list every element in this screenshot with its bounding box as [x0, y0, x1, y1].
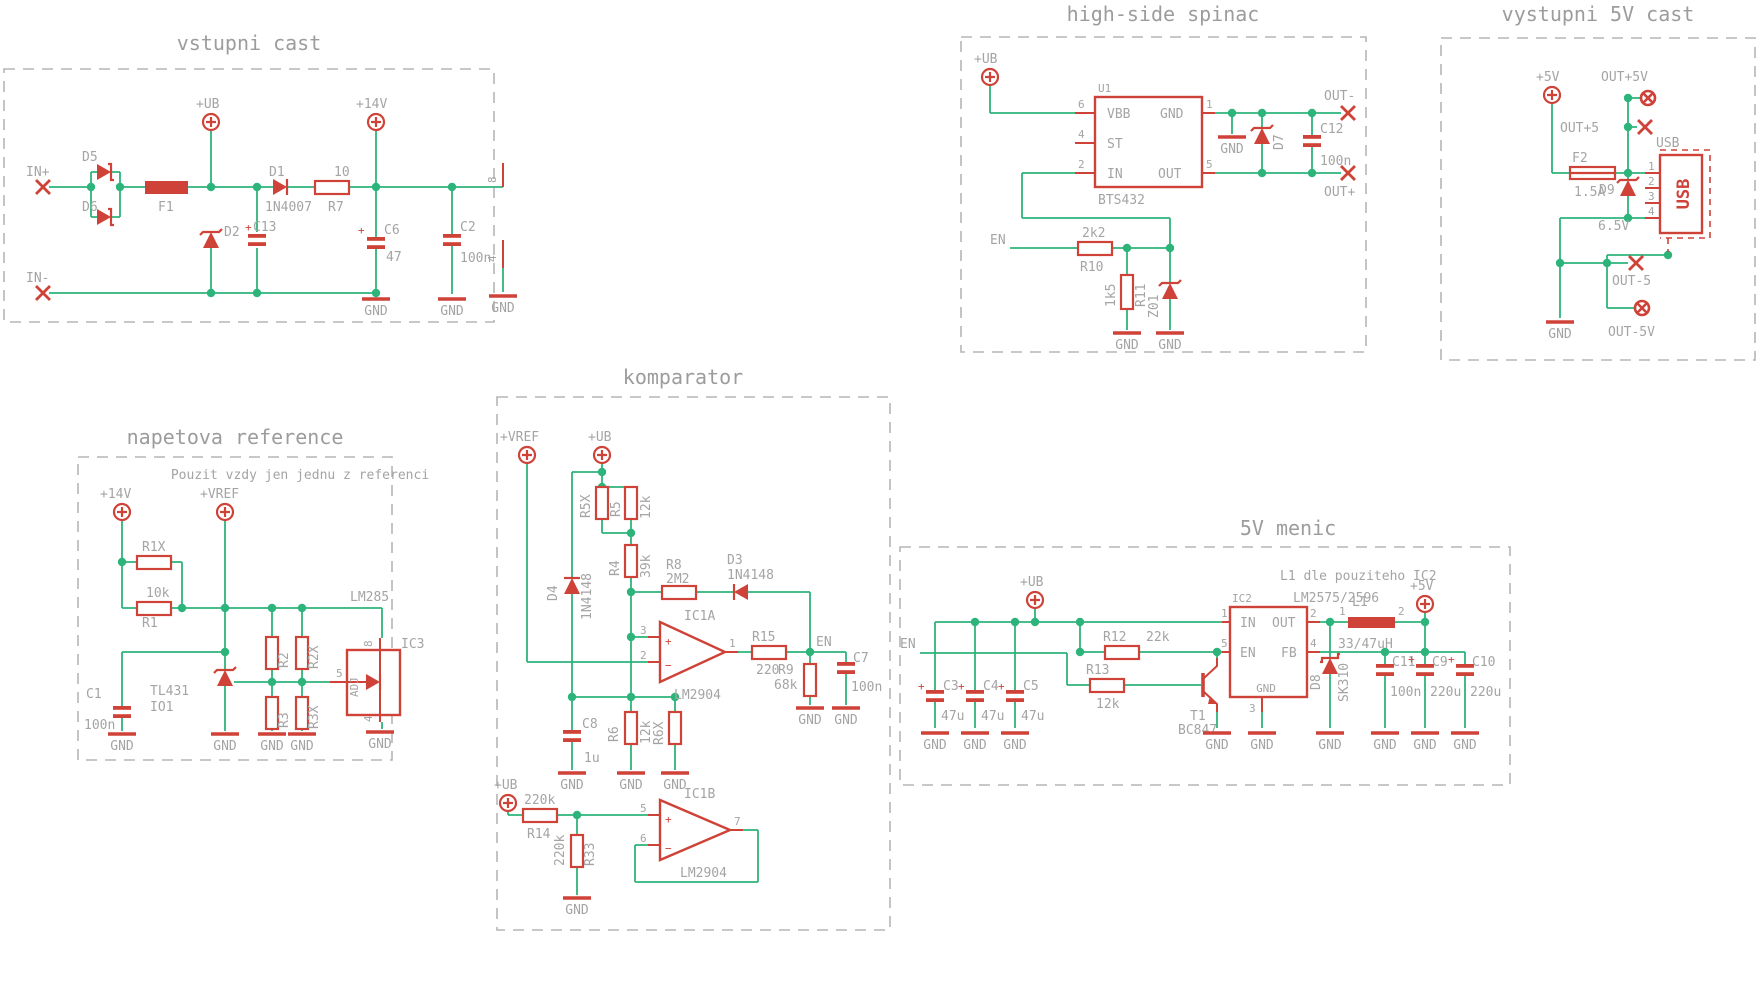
label-gnd: GND — [110, 739, 134, 754]
label-ic2-pin3: 3 — [1249, 702, 1256, 715]
label-r4-value: 39k — [639, 554, 654, 578]
label-tl431: TL431 — [150, 684, 189, 699]
junction — [207, 183, 215, 191]
junction — [116, 183, 124, 191]
label-ic3-pin8: 8 — [362, 640, 375, 647]
power-ub — [500, 795, 516, 811]
label-net-en: EN — [900, 637, 916, 652]
label-r1-value: 10k — [146, 586, 170, 601]
label-d9-value: 6.5V — [1598, 219, 1629, 234]
label-c5: C5 — [1023, 679, 1039, 694]
label-d3-value: 1N4148 — [727, 568, 774, 583]
ic2-pin-gnd: GND — [1256, 682, 1276, 695]
terminal-out-minus-5 — [1629, 256, 1643, 270]
schematic-canvas: vstupni cast IN+ IN- D5 D6 F1 +UB D2 + C… — [0, 0, 1758, 1000]
junction — [1228, 109, 1236, 117]
label-ic1a-pin3: 3 — [640, 624, 647, 637]
junction — [221, 604, 229, 612]
cap-c4 — [966, 690, 984, 702]
label-gnd: GND — [213, 739, 237, 754]
label-r12: R12 — [1103, 630, 1126, 645]
label-r9-value: 68k — [774, 678, 798, 693]
label-ic1a: IC1A — [684, 609, 715, 624]
label-r1: R1 — [142, 616, 158, 631]
junction — [1421, 618, 1429, 626]
terminal-in-minus — [36, 286, 50, 300]
label-gnd: GND — [963, 738, 987, 753]
junction — [268, 678, 276, 686]
label-in-minus: IN- — [26, 271, 49, 286]
junction — [627, 693, 635, 701]
resistor-r10 — [1078, 242, 1112, 255]
section-title: vstupni cast — [177, 31, 322, 55]
junction — [1421, 648, 1429, 656]
inductor-l1 — [1348, 617, 1395, 628]
label-ub: +UB — [1020, 575, 1044, 590]
junction — [372, 183, 380, 191]
power-ub — [982, 69, 998, 85]
diode-d6 — [97, 209, 114, 225]
junction — [627, 588, 635, 596]
label-c3: C3 — [943, 679, 959, 694]
label-gnd: GND — [560, 778, 584, 793]
label-14v: +14V — [356, 97, 387, 112]
label-d8-value: SK310 — [1337, 663, 1352, 702]
label-u1: U1 — [1098, 82, 1111, 95]
junction — [1213, 648, 1221, 656]
label-r15-value: 220 — [756, 663, 779, 678]
label-usb-pin2: 2 — [1648, 175, 1655, 188]
diode-d1 — [273, 179, 287, 195]
section-title: high-side spinac — [1067, 2, 1260, 26]
ic2-pin-out: OUT — [1272, 616, 1296, 631]
label-usb: USB — [1656, 136, 1680, 151]
label-c6: C6 — [384, 223, 400, 238]
junction — [178, 604, 186, 612]
label-r13-value: 12k — [1096, 697, 1120, 712]
pad-out-minus-5v — [1635, 301, 1649, 315]
junction — [118, 558, 126, 566]
resistor-r7 — [315, 181, 349, 194]
label-gnd: GND — [364, 304, 388, 319]
junction — [627, 529, 635, 537]
label-d1-value: 1N4007 — [265, 200, 312, 215]
label-gnd: GND — [1453, 738, 1477, 753]
junction — [253, 183, 261, 191]
junction — [1258, 109, 1266, 117]
label-pin8: 8 — [486, 176, 499, 183]
label-gnd: GND — [1158, 338, 1182, 353]
junction — [1076, 648, 1084, 656]
label-c11-value: 100n — [1390, 685, 1421, 700]
resistor-r6x — [669, 712, 681, 744]
section-title: vystupni 5V cast — [1502, 2, 1695, 26]
label-out-minus-5: OUT-5 — [1612, 274, 1651, 289]
label-d7: D7 — [1272, 134, 1287, 150]
cap-c6 — [367, 237, 385, 249]
label-ic3-pin5: 5 — [336, 667, 343, 680]
label-gnd: GND — [798, 713, 822, 728]
label-c13: C13 — [253, 220, 276, 235]
power-14v — [114, 504, 130, 520]
label-c1: C1 — [86, 687, 102, 702]
label-ic1b: IC1B — [684, 787, 715, 802]
resistor-r15 — [752, 646, 786, 659]
usb-rotated-text: USB — [1674, 179, 1694, 210]
label-c1-value: 100n — [84, 718, 115, 733]
power-vref — [217, 504, 233, 520]
resistor-r13 — [1090, 679, 1124, 692]
schematic-svg: vstupni cast IN+ IN- D5 D6 F1 +UB D2 + C… — [0, 0, 1758, 1000]
label-c7-value: 100n — [851, 680, 882, 695]
label-gnd: GND — [1548, 327, 1572, 342]
label-5v: +5V — [1410, 579, 1434, 594]
junction — [253, 289, 261, 297]
label-r13: R13 — [1086, 663, 1109, 678]
ic1a-minus: − — [665, 659, 672, 672]
label-z01: Z01 — [1147, 295, 1162, 318]
section-converter: 5V menic EN +UB R13 12k R12 22k T1 BC847… — [900, 516, 1510, 785]
label-r15: R15 — [752, 630, 775, 645]
power-ub — [594, 447, 610, 463]
label-ub: +UB — [494, 778, 518, 793]
junction — [573, 811, 581, 819]
resistor-r14 — [523, 809, 557, 822]
label-gnd: GND — [491, 301, 515, 316]
label-l1: L1 — [1352, 595, 1368, 610]
section-frame — [4, 69, 494, 322]
label-gnd: GND — [1318, 738, 1342, 753]
label-r8-value: 2M2 — [666, 572, 689, 587]
label-f1: F1 — [158, 200, 174, 215]
label-gnd: GND — [1250, 738, 1274, 753]
polarity-plus: + — [998, 680, 1005, 693]
label-ic2-pin5: 5 — [1221, 637, 1228, 650]
junction — [207, 289, 215, 297]
section-title: 5V menic — [1240, 516, 1336, 540]
u1-pin-out: OUT — [1158, 167, 1182, 182]
section-note: Pouzit vzdy jen jednu z referenci — [171, 468, 429, 483]
label-r33: R33 — [583, 843, 598, 866]
u1-pin-st: ST — [1107, 137, 1123, 152]
label-d2: D2 — [224, 225, 240, 240]
cap-c12 — [1303, 135, 1321, 147]
label-d3: D3 — [727, 553, 743, 568]
junction — [1603, 259, 1611, 267]
terminal-out-plus-5 — [1638, 120, 1652, 134]
section-title: napetova reference — [127, 425, 344, 449]
label-c8: C8 — [582, 717, 598, 732]
label-vref: +VREF — [500, 430, 539, 445]
diode-d4 — [564, 578, 580, 594]
ic2-pin-fb: FB — [1281, 646, 1297, 661]
cap-c13 — [248, 234, 266, 246]
label-ic1a-value: LM2904 — [674, 688, 721, 703]
label-gnd: GND — [440, 304, 464, 319]
section-comparator: komparator +VREF +UB R5X R5 12k R4 39k D… — [494, 365, 890, 930]
label-5v: +5V — [1536, 70, 1560, 85]
resistor-r5 — [625, 487, 637, 519]
label-out-plus: OUT+ — [1324, 185, 1355, 200]
u1-pin-in: IN — [1107, 167, 1123, 182]
ic1b-minus: − — [665, 842, 672, 855]
label-c6-value: 47 — [386, 250, 402, 265]
junction — [372, 289, 380, 297]
label-out-plus-5v: OUT+5V — [1601, 70, 1648, 85]
label-u1-value: BTS432 — [1098, 193, 1145, 208]
label-r5x: R5X — [579, 494, 594, 518]
label-d4-value: 1N4148 — [580, 573, 595, 620]
zener-tl431 — [214, 667, 236, 686]
label-l1-pin1: 1 — [1339, 605, 1346, 618]
label-gnd: GND — [1220, 142, 1244, 157]
label-ic1b-pin7: 7 — [734, 815, 741, 828]
ic1a-plus: + — [665, 635, 672, 648]
power-5v — [1417, 596, 1433, 612]
junction — [598, 468, 606, 476]
label-c5-value: 47u — [1021, 709, 1044, 724]
junction — [627, 633, 635, 641]
label-r14: R14 — [527, 827, 551, 842]
label-d6: D6 — [82, 200, 98, 215]
label-r2: R2 — [277, 652, 292, 668]
label-gnd: GND — [1003, 738, 1027, 753]
cap-c5 — [1006, 690, 1024, 702]
junction — [1556, 259, 1564, 267]
junction — [87, 183, 95, 191]
u1-pin-vbb: VBB — [1107, 107, 1131, 122]
polarity-plus: + — [245, 221, 252, 234]
ic2-pin-in: IN — [1240, 616, 1256, 631]
power-ub — [203, 114, 219, 130]
label-ub: +UB — [196, 97, 220, 112]
label-l1-pin2: 2 — [1398, 605, 1405, 618]
resistor-r11 — [1121, 275, 1133, 309]
label-r3x: R3X — [307, 705, 322, 729]
junction — [568, 693, 576, 701]
ic1b-plus: + — [665, 813, 672, 826]
zener-d9 — [1617, 177, 1639, 196]
junction — [298, 604, 306, 612]
resistor-r9 — [804, 664, 816, 696]
label-t1: T1 — [1190, 709, 1206, 724]
label-c3-value: 47u — [941, 709, 964, 724]
power-vref — [519, 447, 535, 463]
diode-d3 — [734, 584, 748, 600]
junction — [448, 183, 456, 191]
label-lm285: LM285 — [350, 590, 389, 605]
label-ic1b-pin5: 5 — [640, 802, 647, 815]
label-r2x: R2X — [307, 645, 322, 669]
label-14v: +14V — [100, 487, 131, 502]
label-ic3-pin4: 4 — [362, 715, 375, 722]
label-r5: R5 — [609, 501, 624, 517]
diode-d5 — [97, 164, 114, 180]
label-c12: C12 — [1320, 122, 1343, 137]
junction — [1308, 169, 1316, 177]
junction — [1011, 618, 1019, 626]
section-input: vstupni cast IN+ IN- D5 D6 F1 +UB D2 + C… — [4, 31, 517, 322]
label-c10-value: 220u — [1470, 685, 1501, 700]
label-r6x: R6X — [652, 721, 667, 745]
label-ic1b-value: LM2904 — [680, 866, 727, 881]
junction — [1624, 123, 1632, 131]
cap-c2 — [443, 234, 461, 246]
resistor-r4 — [625, 545, 637, 577]
section-title: komparator — [623, 365, 743, 389]
polarity-plus: + — [918, 680, 925, 693]
label-out-minus-5v: OUT-5V — [1608, 325, 1655, 340]
label-ic3: IC3 — [401, 637, 424, 652]
label-f2: F2 — [1572, 151, 1588, 166]
label-u1-pin2: 2 — [1078, 158, 1085, 171]
label-r10: R10 — [1080, 260, 1103, 275]
terminal-in-plus — [36, 180, 50, 194]
label-usb-pin4: 4 — [1648, 205, 1655, 218]
pad-out-plus-5v — [1641, 91, 1655, 105]
label-gnd: GND — [565, 903, 589, 918]
label-u1-pin6: 6 — [1078, 98, 1085, 111]
junction — [1123, 244, 1131, 252]
resistor-r12 — [1105, 646, 1139, 659]
label-c9: C9 — [1432, 655, 1448, 670]
label-usb-pin1: 1 — [1648, 160, 1655, 173]
junction — [1326, 618, 1334, 626]
label-ub: +UB — [588, 430, 612, 445]
label-usb-pin3: 3 — [1648, 190, 1655, 203]
label-d4: D4 — [546, 585, 561, 601]
label-r1x: R1X — [142, 540, 166, 555]
label-gnd: GND — [368, 737, 392, 752]
resistor-r1 — [137, 602, 171, 615]
junction — [1308, 109, 1316, 117]
label-c7: C7 — [853, 651, 869, 666]
label-d5: D5 — [82, 150, 98, 165]
resistor-r1x — [137, 556, 171, 569]
junction — [806, 648, 814, 656]
junction — [1076, 618, 1084, 626]
label-ic2-pin1: 1 — [1221, 607, 1228, 620]
label-ic1a-pin1: 1 — [729, 637, 736, 650]
resistor-r33 — [571, 835, 583, 867]
cap-c3 — [926, 690, 944, 702]
junction — [298, 678, 306, 686]
junction — [1624, 94, 1632, 102]
label-ic1a-pin2: 2 — [640, 649, 647, 662]
label-r7: R7 — [328, 200, 344, 215]
label-gnd: GND — [1413, 738, 1437, 753]
label-net-en: EN — [816, 635, 832, 650]
label-r8: R8 — [666, 558, 682, 573]
ic1a-body — [660, 622, 725, 682]
label-d1: D1 — [269, 165, 285, 180]
junction — [1031, 618, 1039, 626]
label-u1-pin1: 1 — [1206, 98, 1213, 111]
label-io1: IO1 — [150, 700, 173, 715]
cap-c1 — [113, 706, 131, 718]
label-gnd: GND — [619, 778, 643, 793]
resistor-r8 — [662, 586, 696, 599]
label-c4: C4 — [983, 679, 999, 694]
label-c8-value: 1u — [584, 751, 600, 766]
label-r33-value: 220k — [553, 835, 568, 866]
label-adj: ADJ — [348, 677, 361, 697]
label-c4-value: 47u — [981, 709, 1004, 724]
junction — [1166, 244, 1174, 252]
label-gnd: GND — [1205, 738, 1229, 753]
label-d8: D8 — [1309, 674, 1324, 690]
resistor-r6 — [625, 712, 637, 744]
cap-c8 — [563, 730, 581, 742]
label-ic2: IC2 — [1232, 592, 1252, 605]
label-pin4: 4 — [486, 255, 499, 262]
label-l1-value: 33/47uH — [1338, 637, 1393, 652]
section-reference: napetova reference Pouzit vzdy jen jednu… — [78, 425, 429, 760]
terminal-out-minus — [1341, 106, 1355, 120]
junction — [1664, 251, 1672, 259]
label-ic2-pin4: 4 — [1310, 637, 1317, 650]
label-r7-value: 10 — [334, 165, 350, 180]
section-highside: high-side spinac +UB U1 BTS432 VBB ST IN… — [961, 2, 1366, 353]
power-5v — [1544, 87, 1560, 103]
label-r4: R4 — [608, 560, 623, 576]
label-in-plus: IN+ — [26, 165, 50, 180]
junction — [971, 618, 979, 626]
fuse-f1 — [145, 181, 188, 194]
junction — [1258, 169, 1266, 177]
polarity-plus: + — [1448, 653, 1455, 666]
label-r14-value: 220k — [524, 793, 555, 808]
label-net-en: EN — [990, 233, 1006, 248]
polarity-plus: + — [1408, 653, 1415, 666]
label-t1-value: BC847 — [1178, 723, 1217, 738]
section-output5v: vystupni 5V cast +5V OUT+5V OUT+5 F2 1.5… — [1441, 2, 1755, 360]
polarity-plus: + — [958, 680, 965, 693]
junction — [268, 604, 276, 612]
label-c2: C2 — [460, 220, 476, 235]
label-out-plus-5: OUT+5 — [1560, 121, 1599, 136]
label-c10: C10 — [1472, 655, 1495, 670]
label-ub: +UB — [974, 52, 998, 67]
label-r3: R3 — [277, 712, 292, 728]
label-gnd: GND — [260, 739, 284, 754]
label-ic2-pin2: 2 — [1310, 607, 1317, 620]
label-r5-value: 12k — [639, 495, 654, 519]
u1-pin-gnd: GND — [1160, 107, 1184, 122]
label-r12-value: 22k — [1146, 630, 1170, 645]
zener-d2 — [200, 229, 222, 248]
label-out-minus: OUT- — [1324, 89, 1355, 104]
label-vref: +VREF — [200, 487, 239, 502]
label-ic1b-pin6: 6 — [640, 832, 647, 845]
junction — [221, 648, 229, 656]
label-c9-value: 220u — [1430, 685, 1461, 700]
power-ub — [1027, 592, 1043, 608]
label-r9: R9 — [778, 663, 794, 678]
label-c12-value: 100n — [1320, 154, 1351, 169]
label-r11-value: 1k5 — [1104, 284, 1119, 307]
label-u1-pin5: 5 — [1206, 158, 1213, 171]
polarity-plus: + — [358, 224, 365, 237]
label-d9: D9 — [1599, 183, 1615, 198]
zener-d7 — [1251, 125, 1273, 144]
ic2-pin-en: EN — [1240, 646, 1256, 661]
label-r6: R6 — [607, 726, 622, 742]
label-r10-value: 2k2 — [1082, 226, 1105, 241]
power-14v — [368, 114, 384, 130]
label-u1-pin4: 4 — [1078, 128, 1085, 141]
label-gnd: GND — [290, 739, 314, 754]
